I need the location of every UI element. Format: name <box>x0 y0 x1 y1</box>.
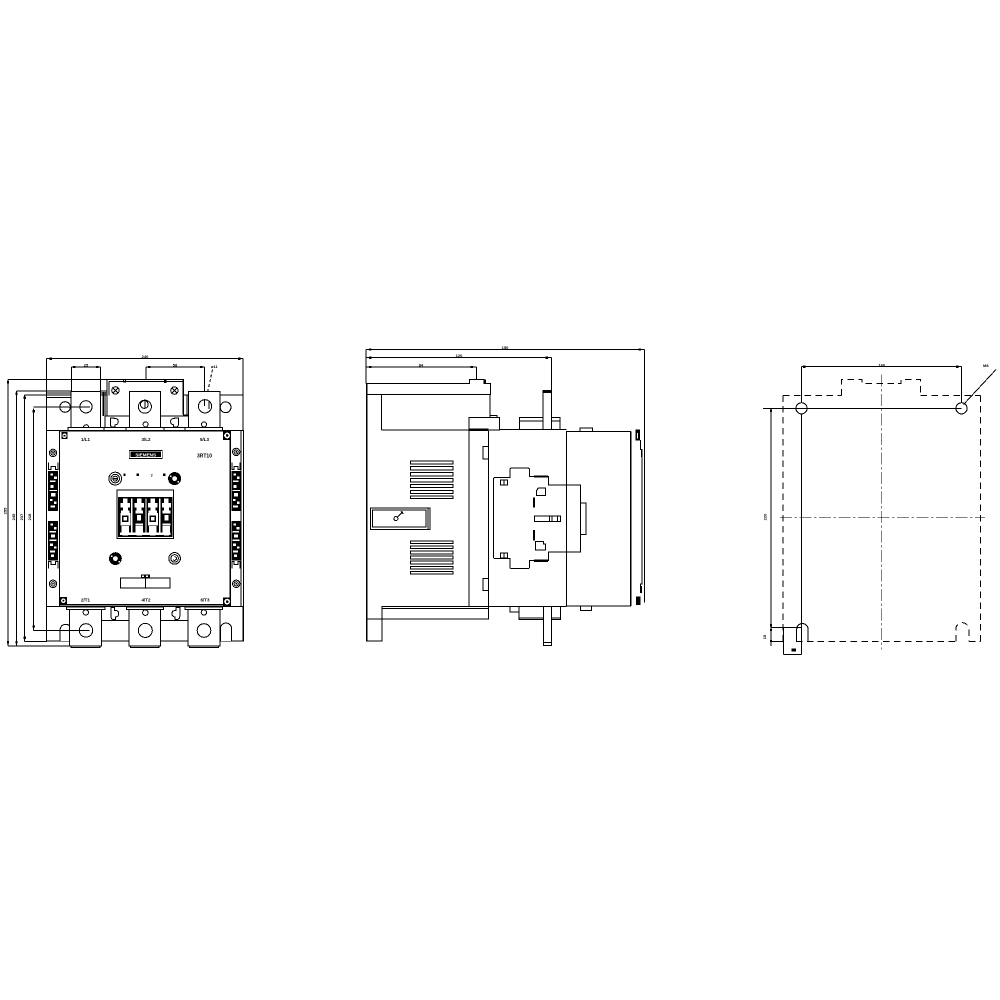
svg-text:240: 240 <box>142 354 149 359</box>
svg-text:15: 15 <box>762 634 767 639</box>
svg-text:M8: M8 <box>983 363 989 368</box>
svg-text:2/T1: 2/T1 <box>81 598 91 603</box>
svg-text:ø11: ø11 <box>211 364 218 369</box>
svg-text:1/L1: 1/L1 <box>81 437 91 442</box>
svg-text:160: 160 <box>878 362 885 367</box>
svg-text:255: 255 <box>3 507 8 514</box>
svg-text:84: 84 <box>419 363 424 368</box>
svg-text:6/T3: 6/T3 <box>200 598 210 603</box>
svg-text:245: 245 <box>11 513 16 520</box>
svg-text:58: 58 <box>173 363 178 368</box>
svg-text:5/L3: 5/L3 <box>200 437 210 442</box>
svg-text:150: 150 <box>502 345 509 350</box>
svg-text:220: 220 <box>763 513 768 520</box>
svg-text:3RT10: 3RT10 <box>197 453 212 459</box>
svg-text:3/L2: 3/L2 <box>141 437 151 442</box>
svg-text:SIEMENS: SIEMENS <box>135 452 156 457</box>
svg-text:4/T2: 4/T2 <box>141 598 151 603</box>
svg-text:25: 25 <box>84 363 89 368</box>
svg-text:120: 120 <box>456 353 463 358</box>
svg-text:237: 237 <box>19 513 24 520</box>
svg-text:218: 218 <box>27 513 32 520</box>
